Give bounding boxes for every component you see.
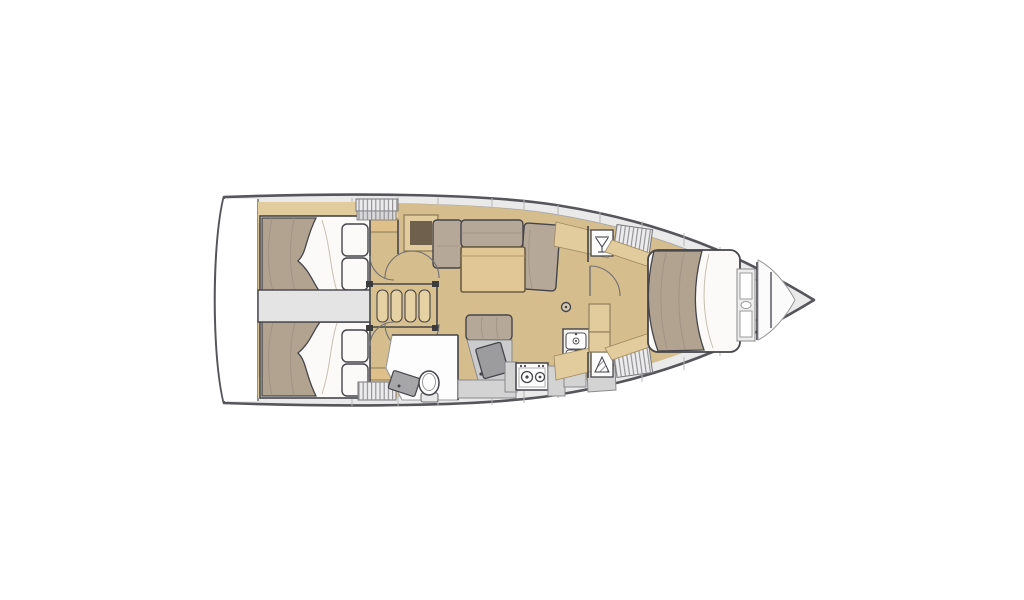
transom-platform bbox=[216, 199, 258, 401]
cabinet-column bbox=[589, 304, 610, 332]
sideboard-inset bbox=[410, 221, 432, 245]
sofa-cushion-left bbox=[433, 220, 462, 268]
counter bbox=[505, 362, 517, 392]
bed-duvet bbox=[648, 251, 704, 351]
pillow bbox=[342, 224, 368, 256]
bow-locker bbox=[758, 260, 795, 340]
bench-seat bbox=[466, 315, 512, 340]
dining-table bbox=[461, 247, 525, 292]
pillow bbox=[342, 330, 368, 362]
floor-plan-canvas bbox=[0, 0, 1024, 600]
yacht-floor-plan bbox=[0, 0, 1024, 600]
pillow bbox=[342, 258, 368, 290]
toilet-icon bbox=[419, 371, 439, 402]
companionway-steps bbox=[366, 281, 439, 331]
stove-icon bbox=[516, 363, 548, 390]
engine-corridor bbox=[258, 290, 372, 322]
sofa-cushion-right bbox=[520, 223, 561, 291]
